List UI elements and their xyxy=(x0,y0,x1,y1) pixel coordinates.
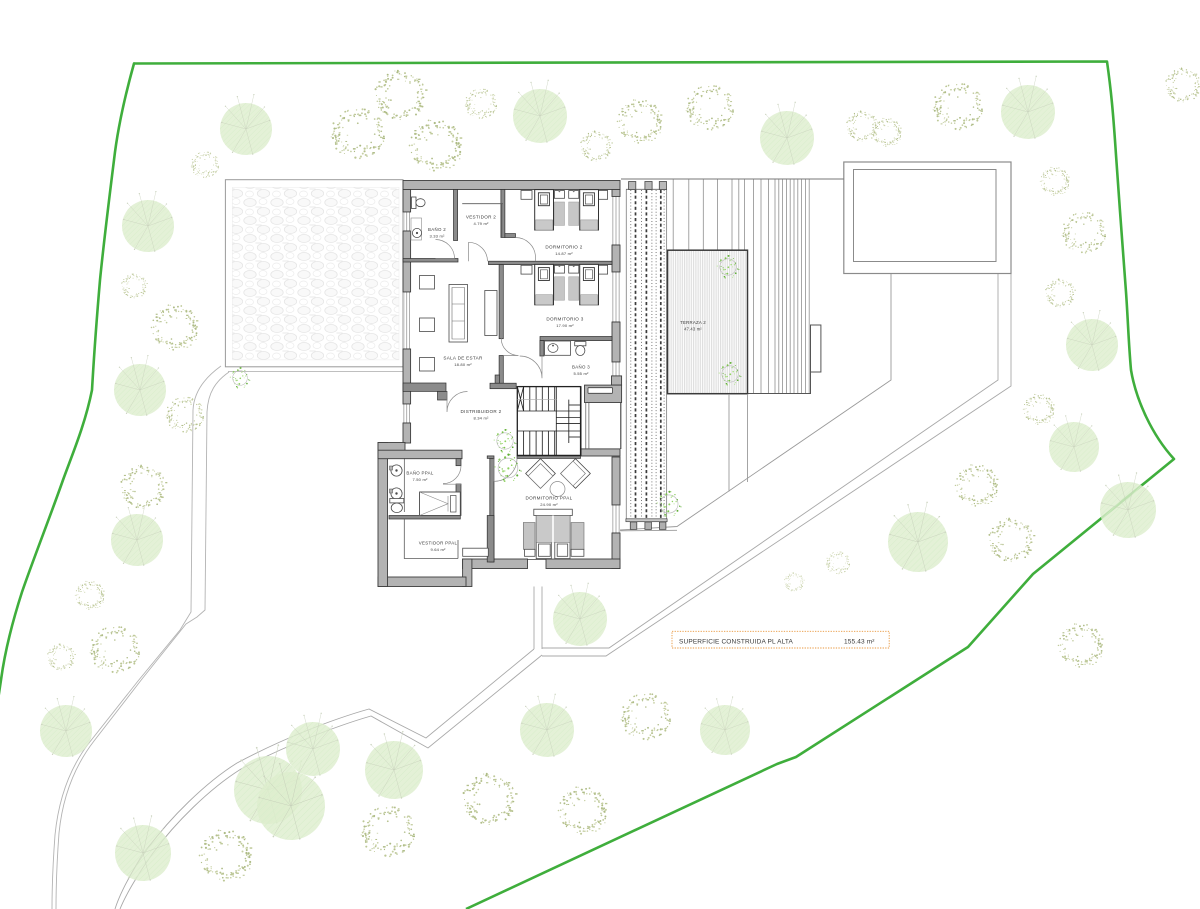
svg-text:DORMITORIO PPAL: DORMITORIO PPAL xyxy=(526,496,573,501)
svg-text:SUPERFICIE CONSTRUIDA PL ALTA: SUPERFICIE CONSTRUIDA PL ALTA xyxy=(679,638,794,645)
svg-text:TERRAZA 2: TERRAZA 2 xyxy=(680,320,706,325)
svg-text:24.90 m²: 24.90 m² xyxy=(540,502,558,507)
svg-text:47.43 m²: 47.43 m² xyxy=(684,327,702,332)
svg-text:BAÑO 2: BAÑO 2 xyxy=(428,227,446,232)
svg-text:BAÑO 3: BAÑO 3 xyxy=(572,365,590,370)
svg-text:DORMITORIO 3: DORMITORIO 3 xyxy=(546,317,583,322)
svg-text:BAÑO PPAL: BAÑO PPAL xyxy=(406,471,434,476)
svg-text:7.50 m²: 7.50 m² xyxy=(412,477,428,482)
svg-text:3.33 m²: 3.33 m² xyxy=(429,234,445,239)
svg-text:SALA DE ESTAR: SALA DE ESTAR xyxy=(443,356,483,361)
svg-text:DORMITORIO 2: DORMITORIO 2 xyxy=(545,245,582,250)
svg-text:DISTRIBUIDOR 2: DISTRIBUIDOR 2 xyxy=(461,409,502,414)
svg-text:18.80 m²: 18.80 m² xyxy=(454,362,472,367)
svg-text:17.90 m²: 17.90 m² xyxy=(556,323,574,328)
svg-text:14.87 m²: 14.87 m² xyxy=(555,251,573,256)
svg-text:9.64 m²: 9.64 m² xyxy=(430,547,446,552)
svg-text:VESTIDOR 2: VESTIDOR 2 xyxy=(466,215,496,220)
svg-text:155.43 m²: 155.43 m² xyxy=(844,638,875,645)
svg-text:5.55 m²: 5.55 m² xyxy=(573,371,589,376)
svg-text:8.34 m²: 8.34 m² xyxy=(473,416,489,421)
svg-text:4.79 m²: 4.79 m² xyxy=(473,221,489,226)
svg-text:VESTIDOR PPAL: VESTIDOR PPAL xyxy=(419,541,458,546)
